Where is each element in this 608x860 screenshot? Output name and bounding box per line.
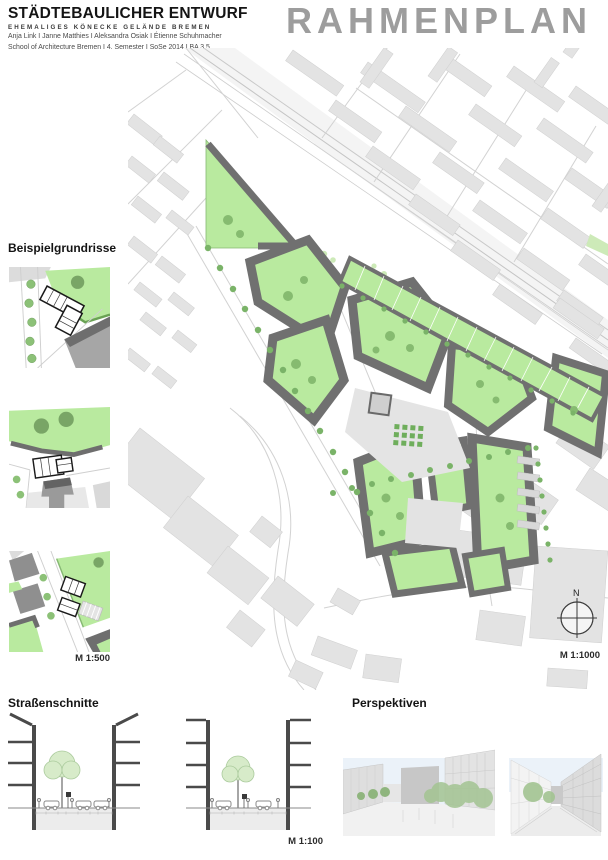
project-subtitle: EHEMALIGES KÖNECKE GELÄNDE BREMEN	[8, 24, 238, 31]
presentation-board: STÄDTEBAULICHER ENTWURF EHEMALIGES KÖNEC…	[0, 0, 608, 860]
perspective-view-2	[505, 748, 607, 836]
floor-plan-thumbnail-3	[9, 551, 110, 652]
section1-tree	[44, 751, 80, 808]
street-section-1	[8, 712, 140, 847]
map-scale-label: M 1:1000	[520, 650, 600, 661]
floor-plan-thumbnail-1	[9, 267, 110, 368]
sections-heading: Straßenschnitte	[8, 696, 99, 710]
examples-heading: Beispielgrundrisse	[8, 241, 116, 255]
street-section-2	[186, 712, 311, 847]
perspective-view-1	[343, 744, 495, 836]
page-title: RAHMENPLAN	[286, 0, 592, 42]
project-authors: Anja Link I Janne Matthies I Aleksandra …	[8, 33, 238, 42]
site-plan-map: N	[128, 48, 608, 690]
floor-plan-thumbnail-2	[9, 407, 110, 508]
perspectives-heading: Perspektiven	[352, 696, 427, 710]
sections-scale-label: M 1:100	[243, 836, 323, 847]
north-label: N	[573, 588, 580, 598]
examples-scale-label: M 1:500	[10, 653, 110, 664]
header-block: STÄDTEBAULICHER ENTWURF EHEMALIGES KÖNEC…	[8, 5, 238, 53]
project-title: STÄDTEBAULICHER ENTWURF	[8, 5, 238, 23]
